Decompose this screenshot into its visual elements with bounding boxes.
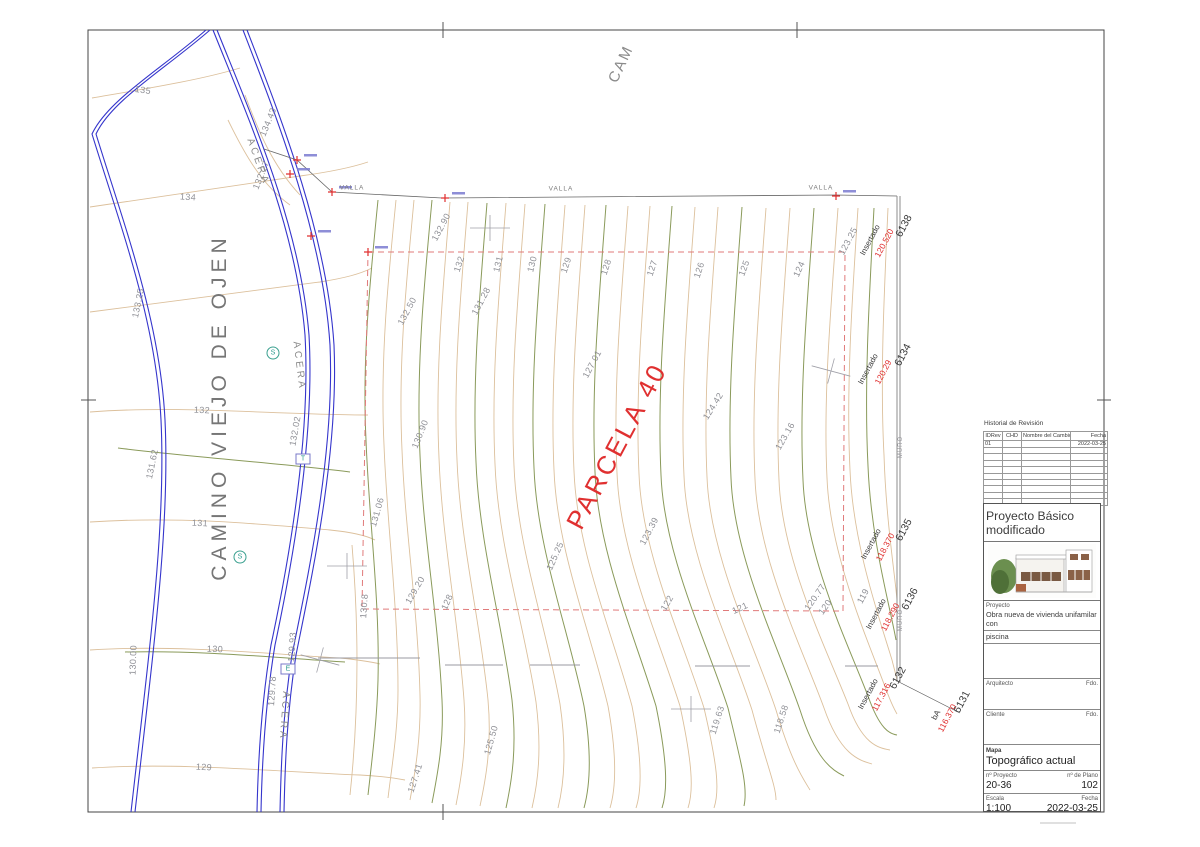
numbers-labels-row: nº Proyecto nº de Plano — [984, 771, 1100, 779]
contour-label: 118.58 — [772, 704, 791, 735]
contour-label: 120 — [816, 597, 833, 616]
architect-label: Arquitecto — [986, 681, 1013, 687]
plan-no-label: nº de Plano — [1067, 773, 1098, 779]
revision-id: 01 — [984, 441, 1003, 448]
project-description-1: Obra nueva de vivienda unifamilar con — [984, 609, 1100, 631]
wall-label: MURO — [898, 436, 904, 458]
contour-label: 126 — [692, 261, 707, 280]
project-no-label: nº Proyecto — [986, 773, 1017, 779]
revision-col-name: Nombre del Cambio — [1022, 432, 1071, 441]
contour-label: 134 — [180, 191, 197, 202]
date-label: Fecha — [1081, 796, 1098, 802]
stake-id: 6135 — [893, 517, 915, 543]
stake-id: 6132 — [887, 665, 909, 691]
revision-col-idrev: IDRev — [984, 432, 1003, 441]
architect-row: Arquitecto Fdo. — [984, 678, 1100, 687]
contour-label: 121 — [731, 600, 750, 616]
contour-label: 131.28 — [470, 285, 493, 316]
fence-label: VALLA — [340, 185, 365, 192]
project-label: Proyecto — [984, 601, 1100, 609]
numbers-values-row: 20-36 102 — [984, 779, 1100, 794]
client-label: Cliente — [986, 712, 1005, 718]
contour-label: 133.25 — [130, 287, 146, 318]
contour-label: 131.62 — [144, 448, 160, 479]
revision-name — [1022, 441, 1071, 448]
utility-symbol-e: E — [281, 664, 296, 675]
project-title: Proyecto Básico modificado — [984, 504, 1100, 542]
revision-col-date: Fecha — [1071, 432, 1108, 441]
client-row: Cliente Fdo. — [984, 709, 1100, 718]
wall-label: MURO — [898, 609, 904, 631]
contour-label: 127 — [645, 259, 660, 278]
scale-label: Escala — [986, 796, 1004, 802]
revision-title: Historial de Revisión — [984, 420, 1101, 427]
revision-row: 01 2022-03-25 — [984, 441, 1108, 448]
stake-id: 6138 — [893, 213, 915, 239]
contour-label: 127.01 — [581, 348, 604, 379]
road-name-label: CAMINO VIEJO DE OJEN — [208, 233, 232, 580]
contour-label: 123.39 — [638, 515, 661, 546]
contour-label: 131 — [192, 518, 209, 529]
contour-label: 129 — [196, 762, 213, 773]
contour-label: 123.25 — [837, 225, 860, 256]
scale-value: 1:100 — [986, 803, 1011, 814]
contour-label: 132 — [452, 255, 467, 274]
contour-label: 132.50 — [396, 295, 419, 326]
contour-label: 128 — [599, 258, 614, 277]
revision-chd — [1003, 441, 1022, 448]
title-block: Historial de Revisión IDRev CHD Nombre d… — [983, 420, 1101, 812]
project-no-value: 20-36 — [986, 780, 1012, 791]
contour-label: 119.63 — [708, 705, 727, 736]
top-road-label: CAM — [605, 43, 637, 86]
contour-label: 131 — [491, 255, 505, 273]
contour-label: 125 — [737, 259, 752, 278]
fence-label: VALLA — [549, 186, 574, 193]
contour-label: 132 — [194, 405, 211, 416]
contour-label: 130 — [525, 255, 539, 273]
revision-date: 2022-03-25 — [1071, 441, 1108, 448]
project-description-2: piscina — [984, 631, 1100, 644]
contour-label: 130 — [207, 644, 224, 655]
contour-label: 127.41 — [406, 762, 425, 794]
utility-symbol-s: S — [267, 347, 280, 360]
title-block-main: Proyecto Básico modificado — [983, 503, 1101, 812]
plan-no-value: 102 — [1081, 780, 1098, 791]
contour-label: 132.02 — [287, 415, 302, 446]
project-thumbnail — [984, 542, 1100, 601]
parcel-label: PARCELA 40 — [560, 357, 674, 534]
contour-label: 124 — [791, 260, 807, 279]
date-value: 2022-03-25 — [1047, 803, 1098, 814]
contour-label: 129.20 — [403, 575, 427, 606]
stake-id: 6131 — [951, 689, 973, 715]
contour-label: 122 — [659, 593, 676, 612]
architect-sign-label: Fdo. — [1086, 681, 1098, 687]
contour-label: 130.00 — [127, 645, 138, 675]
contour-label: 129 — [559, 256, 574, 275]
label-overlay: PARCELA 40 CAMINO VIEJO DE OJEN CAM Hist… — [0, 0, 1200, 847]
revision-table: IDRev CHD Nombre del Cambio Fecha 01 202… — [983, 431, 1108, 506]
sidewalk-label: ACERA — [291, 341, 308, 391]
scale-date-values-row: 1:100 2022-03-25 — [984, 802, 1100, 816]
fence-label: VALLA — [809, 185, 834, 192]
contour-label: 128 — [439, 593, 455, 612]
contour-label: 129.78 — [266, 676, 278, 707]
sidewalk-label: ACERA — [277, 691, 291, 741]
scale-date-labels-row: Escala Fecha — [984, 794, 1100, 802]
sheet-title: Topográfico actual — [984, 754, 1100, 771]
contour-label: 132.90 — [430, 211, 453, 242]
revision-col-chd: CHD — [1003, 432, 1022, 441]
contour-label: 134.43 — [258, 106, 278, 138]
sheet-type-label: Mapa — [984, 744, 1100, 754]
plan-sheet: PARCELA 40 CAMINO VIEJO DE OJEN CAM Hist… — [0, 0, 1200, 847]
utility-symbol-s: S — [234, 551, 247, 564]
contour-label: 130.90 — [410, 418, 430, 450]
stake-id: 6134 — [892, 342, 914, 368]
contour-label: 123.16 — [773, 421, 797, 452]
contour-label: 125.25 — [544, 540, 565, 571]
house-render — [988, 544, 1096, 598]
contour-label: 119 — [855, 587, 871, 605]
stake-id: 6136 — [899, 586, 921, 612]
contour-label: 130.8 — [358, 593, 370, 618]
contour-label: 125.50 — [482, 724, 500, 756]
client-sign-label: Fdo. — [1086, 712, 1098, 718]
contour-label: 131.06 — [368, 496, 386, 528]
contour-label: 129.93 — [286, 632, 298, 663]
utility-symbol-t: T — [296, 454, 311, 465]
contour-label: 124.42 — [701, 391, 725, 422]
contour-label: 135 — [134, 84, 151, 96]
